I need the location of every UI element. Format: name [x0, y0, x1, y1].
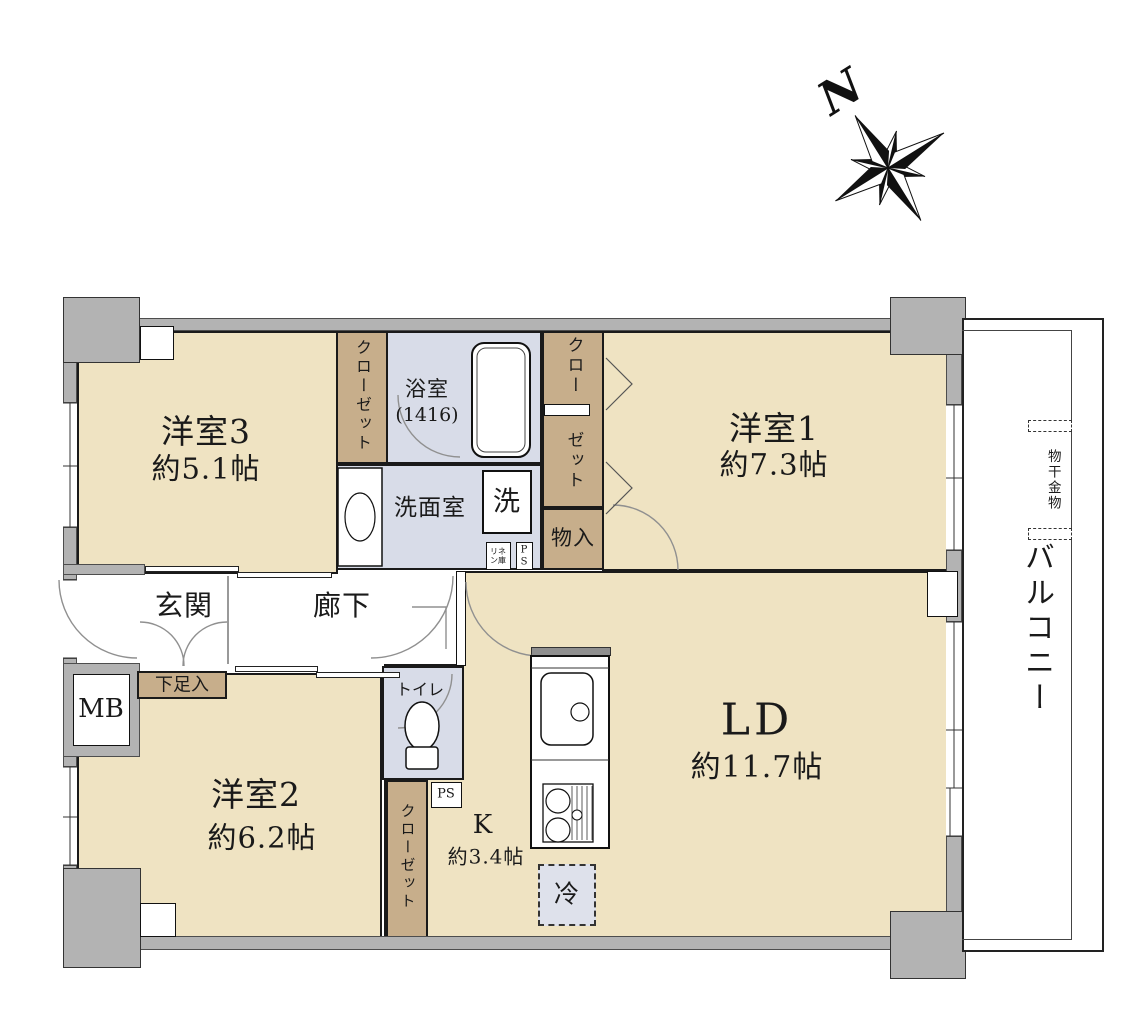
plan-overlay: N [0, 0, 1122, 1021]
balcony-label: バルコニー [1021, 542, 1051, 717]
room-size-kitchen: 約3.4帖 [448, 846, 525, 869]
north-label: N [806, 57, 874, 127]
ld-door-arc [466, 582, 540, 656]
room-label-western2: 洋室2 [211, 776, 301, 814]
western1-door-arc [613, 505, 678, 570]
fridge-label: 冷 [554, 881, 580, 910]
room-size-bathroom: (1416) [395, 405, 458, 427]
pipe-space-upper-label: P S [521, 545, 528, 568]
closet-label-western1-top: クロー [565, 336, 582, 396]
hallway-label: 廊下 [313, 590, 371, 622]
folding-door-icon [606, 358, 632, 514]
compass-rose: N [773, 34, 976, 254]
room-label-western3: 洋室3 [161, 413, 251, 451]
linen-label: リネ ン庫 [490, 547, 506, 565]
room-label-bathroom: 浴室 [405, 377, 449, 401]
bathtub-icon [472, 343, 530, 457]
washer-label: 洗 [493, 486, 521, 517]
closet-label-western3: クローゼット [354, 339, 370, 453]
toilet-icon [405, 702, 439, 769]
pipe-space-lower-label: PS [437, 788, 455, 803]
room-size-western3: 約5.1帖 [151, 452, 260, 485]
storage-shelf-label: 物入 [551, 526, 595, 550]
vanity-sink-icon [338, 468, 382, 566]
shoe-box-label: 下足入 [155, 676, 209, 697]
laundry-hardware-label: 物干金物 [1045, 449, 1059, 511]
floor-plan: N 洋室3 約5.1帖 洋室1 約7.3帖 洋室2 約6.2帖 LD 約11.7… [0, 0, 1122, 1021]
closet-label-western1-bottom: ゼット [565, 431, 582, 491]
room-label-western1: 洋室1 [729, 410, 819, 448]
kitchen-counter [531, 656, 609, 848]
shoe-box-door-arc [183, 622, 227, 666]
entrance-label: 玄関 [155, 590, 213, 622]
stove-icon [543, 784, 593, 842]
room-size-western2: 約6.2帖 [207, 821, 316, 854]
meter-box-label: MB [78, 695, 124, 725]
room-label-ld: LD [721, 696, 794, 747]
washroom-door-arc [371, 576, 453, 658]
room-size-ld: 約11.7帖 [691, 751, 824, 786]
front-door-arc [59, 580, 137, 658]
faucet-icon [571, 703, 589, 721]
shoe-box-door-arc [140, 622, 184, 666]
ld-door-leaf [412, 607, 446, 649]
room-size-western1: 約7.3帖 [719, 448, 828, 481]
closet-label-western2: クローゼット [400, 803, 415, 911]
toilet-label: トイレ [396, 681, 444, 699]
room-label-kitchen: K [473, 811, 493, 841]
room-label-washroom: 洗面室 [394, 495, 466, 521]
